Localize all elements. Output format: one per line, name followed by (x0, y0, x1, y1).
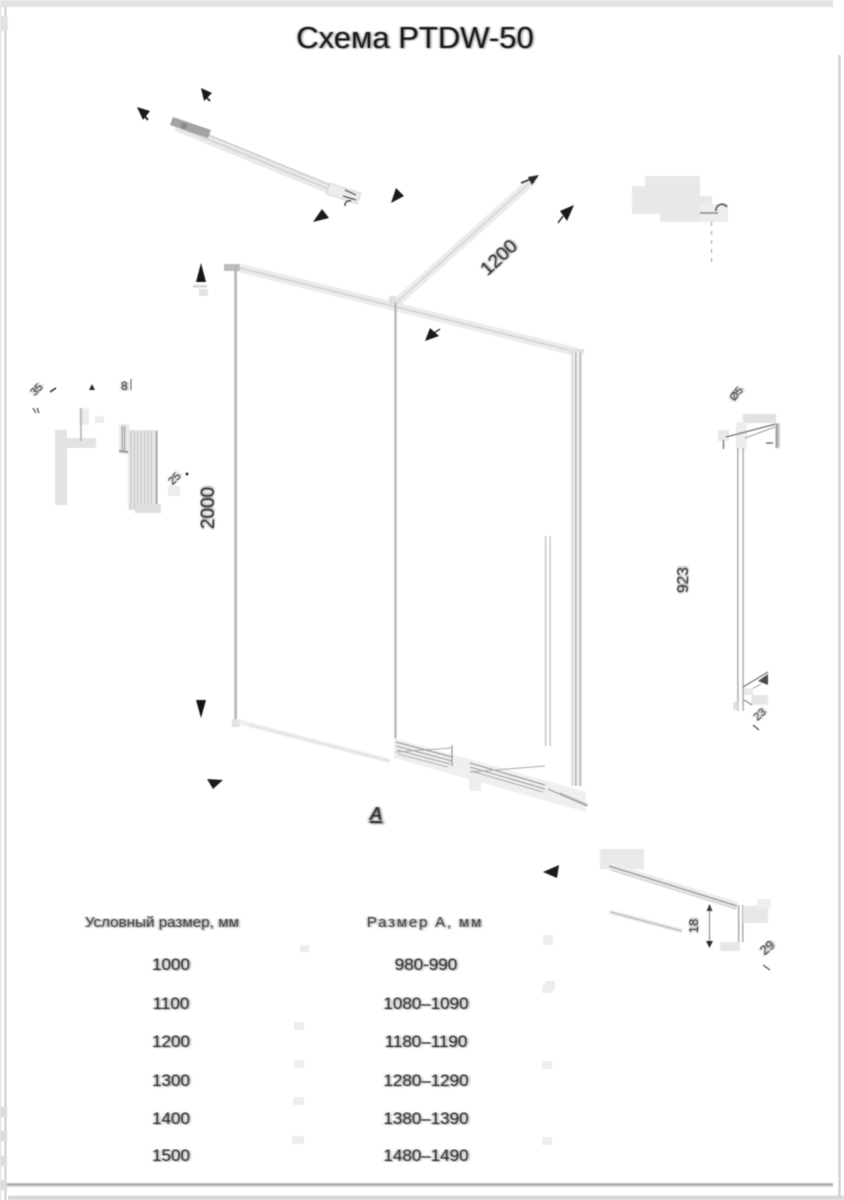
svg-text:Условный размер, мм: Условный размер, мм (85, 914, 239, 931)
svg-text:Схема PTDW-50: Схема PTDW-50 (296, 20, 533, 55)
svg-text:29: 29 (757, 937, 778, 958)
svg-text:1100: 1100 (153, 994, 190, 1013)
svg-text:1400: 1400 (152, 1109, 190, 1128)
svg-text:923: 923 (675, 567, 692, 593)
svg-text:980-990: 980-990 (395, 955, 457, 974)
svg-text:Размер А, мм: Размер А, мм (367, 914, 483, 931)
svg-text:8: 8 (121, 379, 128, 393)
svg-text:1380–1390: 1380–1390 (383, 1109, 468, 1128)
svg-text:1080–1090: 1080–1090 (383, 994, 468, 1013)
svg-text:25: 25 (166, 470, 183, 487)
svg-text:2000: 2000 (198, 487, 219, 529)
svg-text:1200: 1200 (152, 1032, 190, 1051)
svg-text:1200: 1200 (477, 236, 522, 280)
svg-text:1300: 1300 (152, 1071, 190, 1090)
svg-text:1480–1490: 1480–1490 (383, 1146, 468, 1165)
svg-text:1000: 1000 (152, 955, 190, 974)
svg-text:18: 18 (686, 919, 701, 933)
svg-text:1280–1290: 1280–1290 (383, 1071, 468, 1090)
svg-text:1180–1190: 1180–1190 (385, 1032, 468, 1051)
svg-text:Ø5: Ø5 (727, 385, 746, 404)
svg-text:35: 35 (28, 381, 45, 398)
svg-text:23: 23 (751, 706, 768, 723)
svg-text:А: А (369, 804, 382, 824)
svg-text:1500: 1500 (152, 1146, 190, 1165)
